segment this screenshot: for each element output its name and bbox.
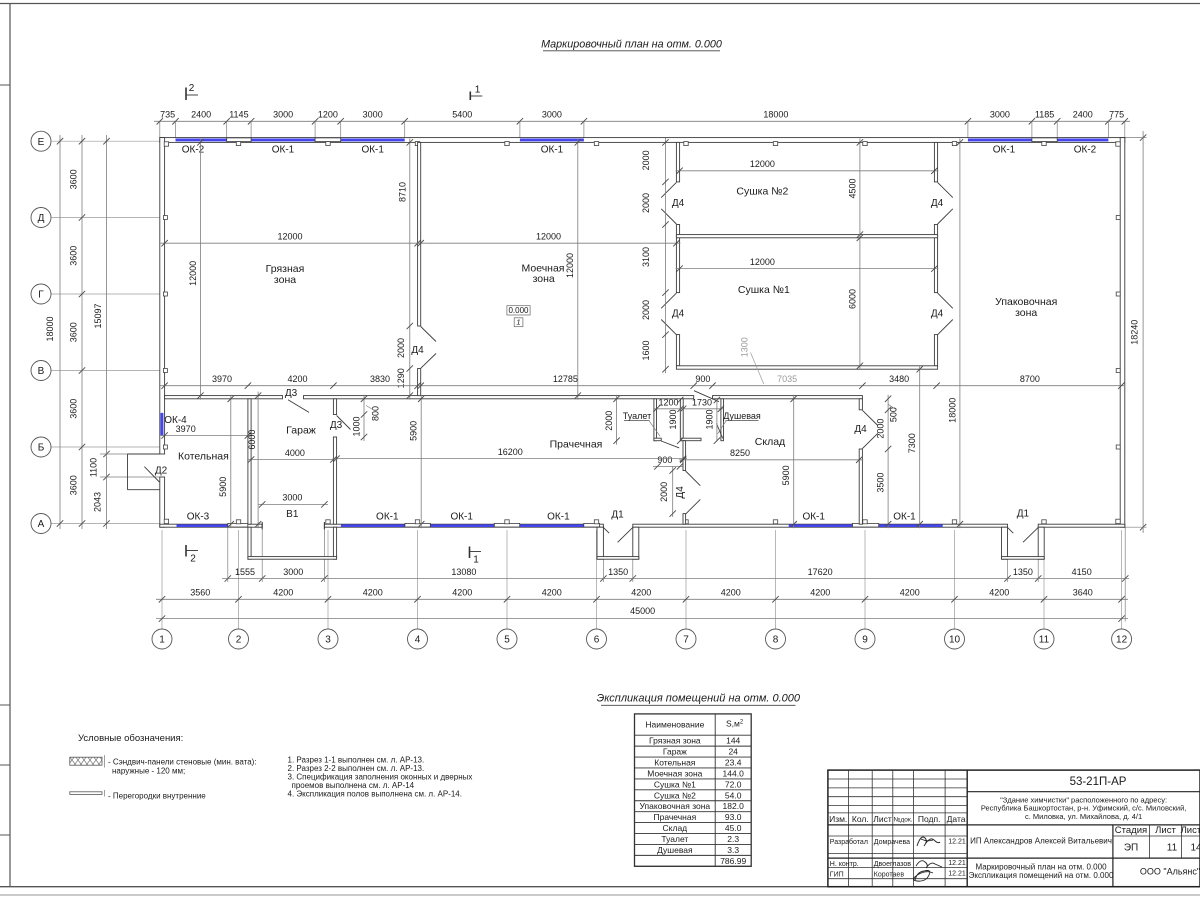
svg-text:Стадия: Стадия xyxy=(1115,825,1147,836)
svg-text:182.0: 182.0 xyxy=(723,801,745,811)
svg-text:8700: 8700 xyxy=(1020,374,1040,384)
svg-text:Прачечная: Прачечная xyxy=(653,812,696,822)
svg-text:Моечная зона: Моечная зона xyxy=(647,768,702,778)
svg-text:В1: В1 xyxy=(286,509,299,520)
svg-text:ОК-1: ОК-1 xyxy=(361,145,384,156)
svg-text:1350: 1350 xyxy=(1013,567,1033,577)
svg-text:1185: 1185 xyxy=(1035,110,1054,120)
svg-text:Д4: Д4 xyxy=(931,198,944,209)
svg-text:Сушка №1: Сушка №1 xyxy=(738,284,790,296)
svg-text:Гараж: Гараж xyxy=(286,425,316,437)
svg-text:Душевая: Душевая xyxy=(723,411,761,421)
svg-text:Лист: Лист xyxy=(1155,825,1176,836)
svg-text:93.0: 93.0 xyxy=(725,812,742,822)
svg-text:9: 9 xyxy=(862,635,868,646)
svg-text:Д4: Д4 xyxy=(675,486,686,499)
svg-text:6000: 6000 xyxy=(247,430,257,450)
svg-text:2000: 2000 xyxy=(641,150,651,170)
svg-text:Условные обозначения:: Условные обозначения: xyxy=(78,733,183,744)
svg-text:53-21П-АР: 53-21П-АР xyxy=(1070,776,1127,788)
svg-text:6: 6 xyxy=(594,635,600,646)
svg-text:5: 5 xyxy=(504,635,510,646)
svg-text:5900: 5900 xyxy=(409,421,419,441)
svg-text:Д4: Д4 xyxy=(854,424,867,435)
svg-text:4200: 4200 xyxy=(989,588,1009,598)
svg-text:3600: 3600 xyxy=(69,169,79,189)
svg-text:900: 900 xyxy=(657,455,672,465)
svg-text:3600: 3600 xyxy=(69,475,79,495)
svg-text:ЭП: ЭП xyxy=(1124,843,1138,854)
svg-text:ОК-1: ОК-1 xyxy=(547,512,570,523)
svg-text:4150: 4150 xyxy=(1072,567,1092,577)
svg-text:12000: 12000 xyxy=(750,159,775,169)
svg-text:10: 10 xyxy=(949,635,961,646)
svg-text:7035: 7035 xyxy=(777,374,797,384)
svg-text:5900: 5900 xyxy=(781,465,791,485)
svg-text:2.3: 2.3 xyxy=(727,834,739,844)
svg-text:1: 1 xyxy=(473,555,479,566)
svg-text:4200: 4200 xyxy=(273,588,293,598)
svg-text:11: 11 xyxy=(1039,635,1050,646)
svg-text:ОК-3: ОК-3 xyxy=(187,512,210,523)
svg-text:зона: зона xyxy=(533,273,555,285)
svg-text:1: 1 xyxy=(516,318,520,327)
svg-text:Гараж: Гараж xyxy=(663,747,687,757)
svg-text:3000: 3000 xyxy=(990,110,1010,120)
svg-text:ОК-1: ОК-1 xyxy=(376,512,399,523)
svg-text:с. Миловка, ул. Михайлова, д.: с. Миловка, ул. Михайлова, д. 4/1 xyxy=(1025,812,1142,821)
svg-text:8250: 8250 xyxy=(730,448,750,458)
svg-text:3600: 3600 xyxy=(69,322,79,342)
svg-text:11: 11 xyxy=(1167,843,1178,854)
svg-text:Сушка №2: Сушка №2 xyxy=(736,186,788,198)
svg-text:500: 500 xyxy=(889,407,899,422)
svg-text:12: 12 xyxy=(1116,635,1128,646)
svg-text:3: 3 xyxy=(325,635,331,646)
svg-text:Разработал: Разработал xyxy=(830,838,868,846)
svg-text:Кол.: Кол. xyxy=(852,814,869,824)
svg-text:ИП Александров Алексей Виталье: ИП Александров Алексей Витальевич xyxy=(970,836,1112,845)
svg-text:Д2: Д2 xyxy=(155,466,168,477)
svg-text:4: 4 xyxy=(415,635,421,646)
svg-text:наружные - 120 мм;: наружные - 120 мм; xyxy=(112,766,185,775)
svg-text:3970: 3970 xyxy=(212,374,232,384)
svg-text:Е: Е xyxy=(38,137,45,148)
svg-text:4200: 4200 xyxy=(287,374,307,384)
svg-text:ГИП: ГИП xyxy=(830,871,844,878)
svg-text:12.21: 12.21 xyxy=(948,870,966,877)
svg-text:3830: 3830 xyxy=(370,374,390,384)
svg-text:12000: 12000 xyxy=(565,253,575,278)
svg-text:Д4: Д4 xyxy=(672,309,685,320)
svg-text:1555: 1555 xyxy=(235,567,255,577)
svg-text:Дата: Дата xyxy=(947,814,966,824)
svg-text:ОК-1: ОК-1 xyxy=(893,512,916,523)
svg-text:Н. контр.: Н. контр. xyxy=(830,861,859,868)
svg-text:3600: 3600 xyxy=(69,399,79,419)
svg-text:5400: 5400 xyxy=(452,110,472,120)
svg-text:Лист: Лист xyxy=(873,814,892,824)
svg-text:Котельная: Котельная xyxy=(178,451,229,463)
svg-text:45.0: 45.0 xyxy=(725,823,742,833)
svg-text:1900: 1900 xyxy=(705,409,715,429)
svg-text:3640: 3640 xyxy=(1073,588,1093,598)
svg-text:ОК-1: ОК-1 xyxy=(541,145,564,156)
svg-text:3.3: 3.3 xyxy=(727,845,739,855)
svg-text:144: 144 xyxy=(726,736,740,746)
svg-text:775: 775 xyxy=(1109,110,1124,120)
svg-text:12.21: 12.21 xyxy=(948,860,966,867)
svg-text:3100: 3100 xyxy=(641,247,651,267)
svg-text:3000: 3000 xyxy=(363,110,383,120)
svg-text:1200: 1200 xyxy=(658,398,678,408)
svg-text:15097: 15097 xyxy=(93,303,103,328)
svg-text:3000: 3000 xyxy=(542,110,562,120)
svg-text:800: 800 xyxy=(371,406,381,421)
svg-text:Наименование: Наименование xyxy=(645,720,704,730)
svg-text:2000: 2000 xyxy=(604,411,614,431)
svg-text:1300: 1300 xyxy=(740,337,750,357)
svg-text:ОК-1: ОК-1 xyxy=(993,145,1016,156)
svg-text:Подп.: Подп. xyxy=(918,814,941,824)
svg-text:3000: 3000 xyxy=(283,567,303,577)
svg-text:Туалет: Туалет xyxy=(661,834,688,844)
svg-text:2: 2 xyxy=(189,83,195,94)
svg-text:Склад: Склад xyxy=(755,436,785,448)
svg-text:Упаковочная зона: Упаковочная зона xyxy=(640,801,711,811)
svg-text:Д: Д xyxy=(38,213,45,224)
svg-text:13080: 13080 xyxy=(451,567,476,577)
svg-text:Изм.: Изм. xyxy=(829,814,847,824)
svg-text:ОК-1: ОК-1 xyxy=(450,512,473,523)
svg-text:2000: 2000 xyxy=(396,338,406,358)
svg-text:В: В xyxy=(38,366,45,377)
svg-text:Д3: Д3 xyxy=(285,388,298,399)
svg-text:4200: 4200 xyxy=(542,588,562,598)
svg-text:ОК-1: ОК-1 xyxy=(272,145,295,156)
svg-text:4200: 4200 xyxy=(810,588,830,598)
svg-text:72.0: 72.0 xyxy=(725,779,742,789)
svg-text:Д3: Д3 xyxy=(330,420,343,431)
svg-text:8710: 8710 xyxy=(397,182,407,202)
svg-text:4000: 4000 xyxy=(285,448,305,458)
svg-text:зона: зона xyxy=(274,274,296,286)
svg-text:Домрачева: Домрачева xyxy=(874,839,910,846)
svg-text:12000: 12000 xyxy=(277,231,302,241)
svg-text:18000: 18000 xyxy=(763,110,788,120)
svg-text:1730: 1730 xyxy=(692,398,712,408)
svg-text:12000: 12000 xyxy=(188,261,198,286)
svg-text:8: 8 xyxy=(773,635,779,646)
svg-text:Экспликация помещений на отм.: Экспликация помещений на отм. 0.000 xyxy=(597,693,801,705)
svg-text:1900: 1900 xyxy=(668,409,678,429)
svg-text:18000: 18000 xyxy=(947,398,957,423)
svg-text:Экспликация помещений на отм.: Экспликация помещений на отм. 0.000 xyxy=(969,871,1114,880)
svg-text:12785: 12785 xyxy=(553,374,578,384)
svg-text:144.0: 144.0 xyxy=(723,768,745,778)
svg-text:54.0: 54.0 xyxy=(725,790,742,800)
svg-text:1: 1 xyxy=(159,635,165,646)
svg-text:Сушка №1: Сушка №1 xyxy=(654,779,696,789)
svg-text:735: 735 xyxy=(160,110,175,120)
svg-text:ОК-1: ОК-1 xyxy=(802,512,825,523)
svg-text:ОК-2: ОК-2 xyxy=(1074,145,1097,156)
svg-text:12000: 12000 xyxy=(750,257,775,267)
svg-text:2000: 2000 xyxy=(876,419,886,439)
svg-text:Двоеглазов: Двоеглазов xyxy=(874,861,911,868)
svg-text:2: 2 xyxy=(190,554,196,565)
svg-text:зона: зона xyxy=(1015,307,1037,319)
svg-text:Д1: Д1 xyxy=(1017,508,1030,519)
svg-text:786.99: 786.99 xyxy=(720,856,746,866)
svg-text:16200: 16200 xyxy=(498,447,523,457)
svg-text:ОК-2: ОК-2 xyxy=(182,145,205,156)
svg-text:4. Экспликация полов выполнена: 4. Экспликация полов выполнена см. л. АР… xyxy=(288,790,462,799)
svg-text:7: 7 xyxy=(683,635,689,646)
svg-text:6000: 6000 xyxy=(847,289,857,309)
svg-text:24: 24 xyxy=(728,747,738,757)
svg-text:ООО "Альянс": ООО "Альянс" xyxy=(1140,867,1200,877)
svg-text:18240: 18240 xyxy=(1129,320,1139,345)
svg-text:А: А xyxy=(38,519,45,530)
svg-text:4200: 4200 xyxy=(452,588,472,598)
svg-text:3970: 3970 xyxy=(176,424,196,434)
svg-text:4500: 4500 xyxy=(847,178,857,198)
svg-text:4200: 4200 xyxy=(721,588,741,598)
svg-text:12.21: 12.21 xyxy=(948,839,966,846)
svg-text:1100: 1100 xyxy=(89,458,99,477)
svg-text:Листов: Листов xyxy=(1181,825,1200,836)
svg-text:1200: 1200 xyxy=(318,110,338,120)
svg-text:1145: 1145 xyxy=(229,110,248,120)
svg-text:2000: 2000 xyxy=(641,193,651,213)
svg-text:1600: 1600 xyxy=(641,340,651,360)
svg-text:Д4: Д4 xyxy=(672,198,685,209)
svg-text:3000: 3000 xyxy=(273,110,293,120)
svg-text:2000: 2000 xyxy=(641,300,651,320)
svg-text:Туалет: Туалет xyxy=(623,411,651,421)
svg-text:2043: 2043 xyxy=(93,492,103,512)
svg-text:14: 14 xyxy=(1190,843,1200,854)
svg-text:Г: Г xyxy=(38,290,44,301)
svg-text:0.000: 0.000 xyxy=(508,306,529,315)
svg-text:18000: 18000 xyxy=(45,316,55,341)
svg-text:3600: 3600 xyxy=(69,246,79,266)
svg-text:Д4: Д4 xyxy=(931,309,944,320)
svg-text:2000: 2000 xyxy=(659,482,669,502)
svg-text:Котельная: Котельная xyxy=(654,758,696,768)
svg-text:7300: 7300 xyxy=(907,433,917,453)
svg-text:Душевая: Душевая xyxy=(657,845,693,855)
svg-text:5900: 5900 xyxy=(218,477,228,497)
svg-text:1: 1 xyxy=(475,85,481,96)
svg-text:2400: 2400 xyxy=(1073,110,1093,120)
svg-text:Д4: Д4 xyxy=(411,345,424,356)
svg-text:Грязная зона: Грязная зона xyxy=(649,736,701,746)
svg-text:3500: 3500 xyxy=(876,473,886,493)
svg-text:Склад: Склад xyxy=(663,823,688,833)
svg-text:Прачечная: Прачечная xyxy=(550,439,603,451)
svg-text:№док.: №док. xyxy=(893,817,912,824)
svg-text:45000: 45000 xyxy=(630,606,655,616)
svg-text:1350: 1350 xyxy=(608,567,628,577)
svg-text:Д1: Д1 xyxy=(611,509,624,520)
svg-text:4200: 4200 xyxy=(631,588,651,598)
svg-text:900: 900 xyxy=(695,374,710,384)
svg-text:3480: 3480 xyxy=(889,374,909,384)
svg-text:3000: 3000 xyxy=(282,492,302,502)
svg-text:17620: 17620 xyxy=(808,567,833,577)
svg-text:12000: 12000 xyxy=(536,231,561,241)
svg-text:23.4: 23.4 xyxy=(725,758,742,768)
svg-text:1000: 1000 xyxy=(352,416,362,436)
svg-text:3560: 3560 xyxy=(190,588,210,598)
svg-text:4200: 4200 xyxy=(900,588,920,598)
svg-text:Сушка №2: Сушка №2 xyxy=(654,790,696,800)
svg-text:4200: 4200 xyxy=(363,588,383,598)
svg-text:2: 2 xyxy=(236,635,242,646)
svg-text:Коротаев: Коротаев xyxy=(874,871,905,878)
svg-text:Маркировочный план на отм. 0.0: Маркировочный план на отм. 0.000 xyxy=(975,863,1107,872)
svg-text:Б: Б xyxy=(38,443,45,454)
svg-text:- Сэндвич-панели стеновые (мин: - Сэндвич-панели стеновые (мин. вата): xyxy=(108,758,257,767)
svg-text:Маркировочный план на отм. 0.0: Маркировочный план на отм. 0.000 xyxy=(541,39,722,51)
svg-text:2400: 2400 xyxy=(191,110,211,120)
svg-text:- Перегородки внутренние: - Перегородки внутренние xyxy=(108,792,206,801)
